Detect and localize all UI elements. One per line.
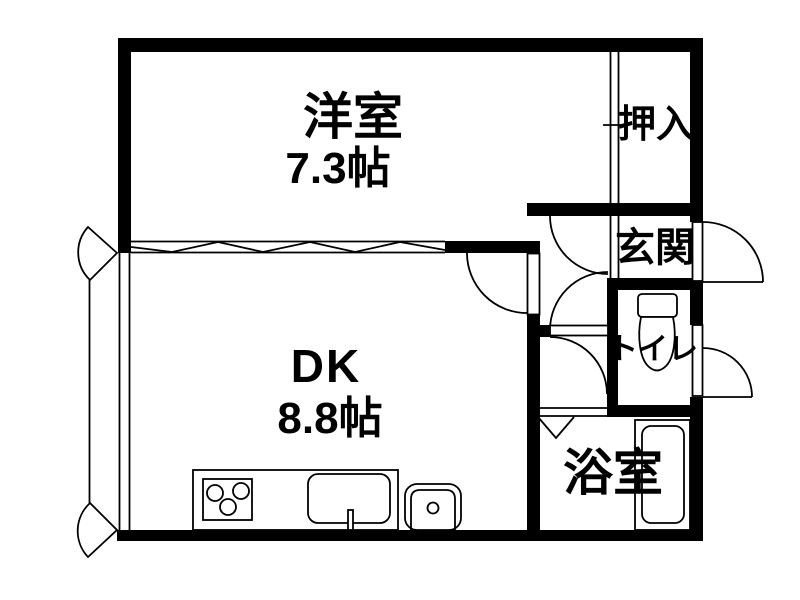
toilet-tank xyxy=(638,294,677,317)
wall-bottom xyxy=(117,530,703,541)
door-leaf xyxy=(528,254,540,315)
label-toilet: トイレ xyxy=(608,333,698,366)
stove-burner xyxy=(207,485,223,501)
wall-top xyxy=(118,38,703,52)
label-closet: 押入 xyxy=(618,104,694,146)
kitchen-counter xyxy=(193,470,398,530)
label-western-room: 洋室 xyxy=(303,89,403,145)
wall-dk-hall-stub xyxy=(445,241,540,253)
floor-plan: 洋室 7.3帖 DK 8.8帖 押入 玄関 トイレ 浴室 xyxy=(0,0,800,600)
wash-basin xyxy=(405,484,461,530)
label-dk-size: 8.8帖 xyxy=(277,394,382,443)
stove-burner xyxy=(233,483,249,499)
wall-right-lower xyxy=(690,397,703,540)
label-dk: DK xyxy=(291,340,361,392)
basin-drain xyxy=(428,503,439,514)
wall-closet-bottom xyxy=(527,203,703,216)
stove-burner xyxy=(220,499,236,515)
label-western-size: 7.3帖 xyxy=(285,144,390,193)
wall-washroom-stub xyxy=(538,325,550,337)
floor-plan-svg: 洋室 7.3帖 DK 8.8帖 押入 玄関 トイレ 浴室 xyxy=(0,0,800,600)
door-leaf xyxy=(550,326,608,336)
label-entrance: 玄関 xyxy=(615,226,695,270)
sink-faucet xyxy=(348,510,353,530)
label-bathroom: 浴室 xyxy=(563,445,663,501)
wall-hall-west xyxy=(527,315,540,530)
wall-left-upper xyxy=(118,38,131,253)
wall-toilet-bath xyxy=(607,405,703,417)
wall-entrance-bottom xyxy=(607,278,703,290)
